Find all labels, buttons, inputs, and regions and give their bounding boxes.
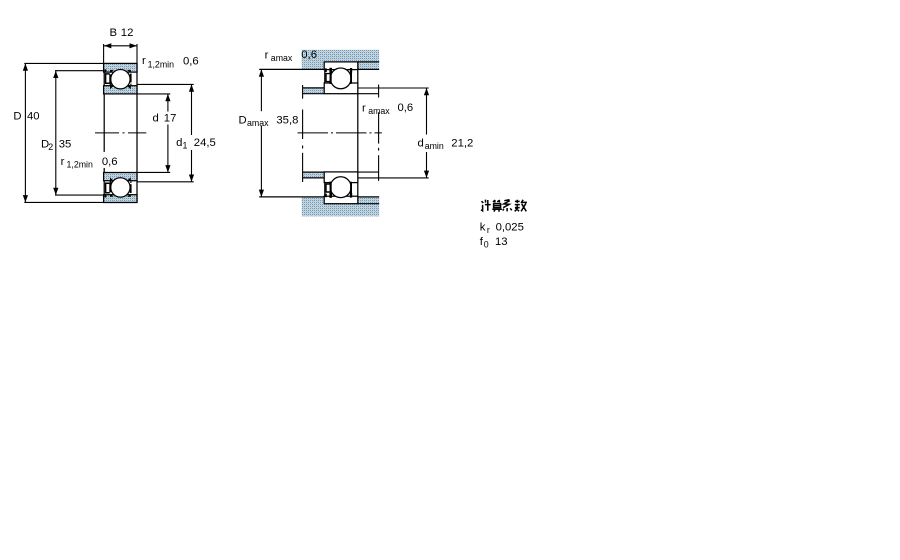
svg-text:d: d [176, 137, 182, 149]
svg-text:r: r [487, 225, 490, 235]
svg-text:1,2min: 1,2min [148, 60, 175, 70]
svg-text:r: r [142, 55, 146, 67]
svg-text:0,6: 0,6 [102, 156, 118, 168]
svg-text:35,8: 35,8 [276, 115, 298, 127]
svg-text:1: 1 [183, 141, 188, 151]
svg-text:40: 40 [27, 111, 40, 123]
svg-text:r: r [362, 103, 366, 115]
svg-text:D: D [239, 115, 247, 127]
svg-text:0,6: 0,6 [398, 102, 414, 114]
svg-text:0,6: 0,6 [301, 49, 317, 61]
svg-text:amax: amax [368, 106, 390, 116]
svg-text:amin: amin [425, 141, 444, 151]
svg-text:24,5: 24,5 [194, 137, 216, 149]
svg-text:k: k [480, 222, 486, 234]
svg-text:1,2min: 1,2min [67, 159, 94, 169]
svg-text:2: 2 [48, 142, 53, 152]
svg-text:d: d [418, 137, 424, 149]
svg-text:21,2: 21,2 [451, 137, 473, 149]
svg-text:B: B [110, 27, 118, 39]
svg-text:r: r [265, 50, 269, 62]
svg-text:17: 17 [164, 112, 177, 124]
svg-text:0,6: 0,6 [183, 55, 199, 67]
svg-text:d: d [153, 112, 159, 124]
svg-text:amax: amax [247, 118, 269, 128]
svg-text:12: 12 [121, 27, 134, 39]
svg-text:r: r [61, 156, 65, 168]
svg-text:amax: amax [271, 53, 293, 63]
svg-text:0: 0 [484, 240, 489, 250]
svg-text:D: D [13, 111, 21, 123]
svg-text:13: 13 [495, 236, 508, 248]
svg-text:35: 35 [59, 139, 72, 151]
svg-text:0,025: 0,025 [496, 222, 524, 234]
